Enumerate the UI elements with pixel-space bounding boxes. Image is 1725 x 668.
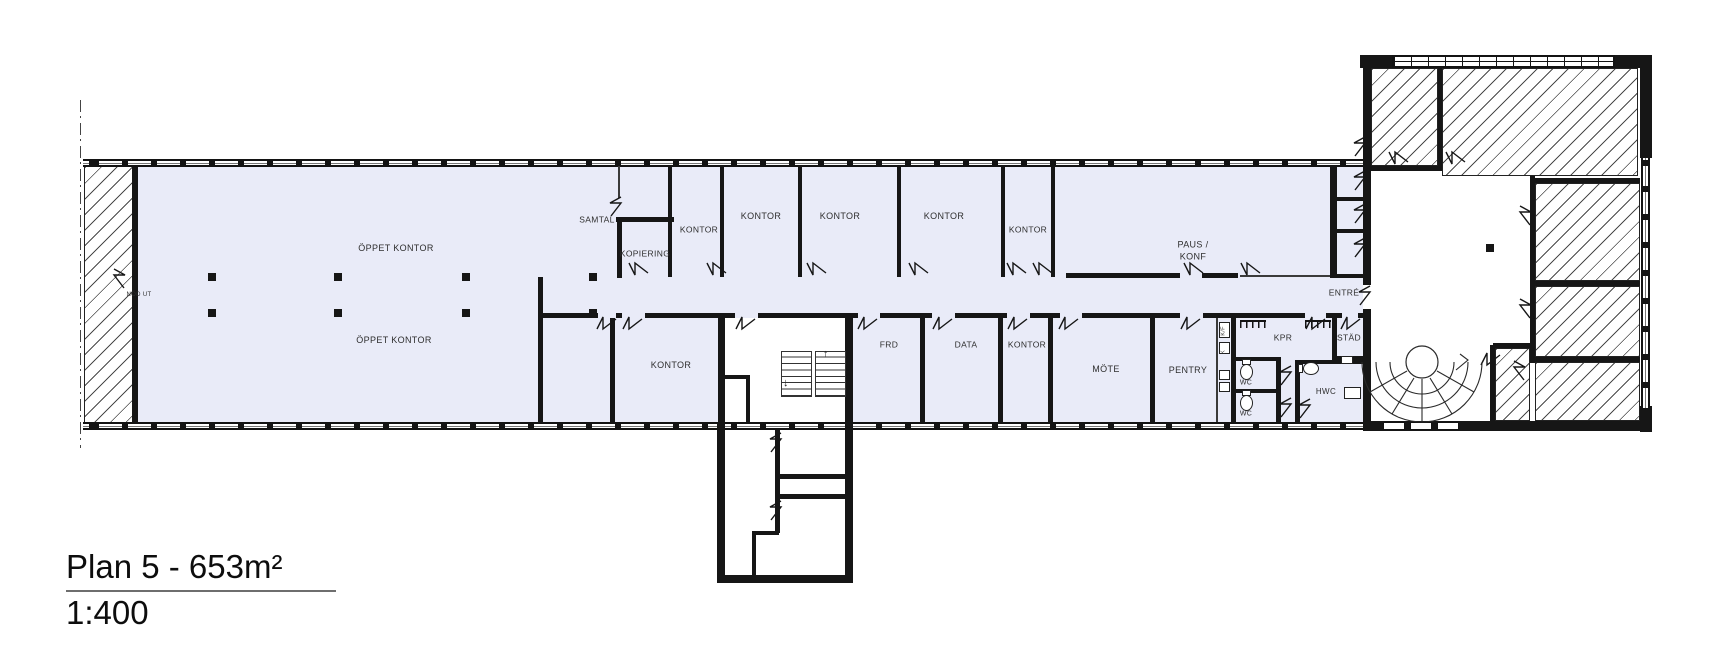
room-label-ppet-kontor: ÖPPET KONTOR [356,335,431,347]
room-label-wc: WC [1240,378,1252,387]
door-swing-icon [1278,397,1293,418]
wall [1001,166,1005,277]
wall [758,313,858,318]
door-swing-icon [1180,316,1201,331]
room-label-kopiering: KOPIERING [620,248,670,259]
window-wall-block-north [1392,55,1615,68]
wall [780,474,845,479]
fixture [1219,382,1230,392]
stair-down-arrow: ↓ [783,378,793,390]
property-line [80,100,81,448]
wall [1231,318,1236,422]
door-swing-icon [857,316,878,331]
door-swing-icon [735,316,756,331]
door-swing-icon [1006,261,1027,276]
door-swing-icon [1305,316,1326,331]
room-label-k: K [1220,350,1227,354]
hatched-area [1535,362,1640,421]
door-swing-icon [706,261,727,276]
door-swing-icon [932,316,953,331]
door-swing-icon [1388,150,1409,165]
room-label-n-d-ut: NÖD UT [126,292,151,300]
fixture [1242,390,1251,396]
coat-rail [1240,320,1266,328]
wall [1048,318,1053,422]
wall [1066,273,1180,278]
wall [920,318,925,422]
wall [1082,313,1180,318]
column [334,309,342,317]
door-swing-icon [806,261,827,276]
room-label-data: DATA [955,339,978,350]
door-swing-icon [1340,316,1361,331]
title-underline [66,590,336,592]
wall [1216,318,1218,422]
door-swing-icon [1183,261,1204,276]
wall [618,166,620,198]
door-swing-icon [622,316,643,331]
room-label-kontor: KONTOR [741,211,781,223]
stair-treads [781,351,812,397]
wall [1337,197,1363,201]
door-swing-icon [112,268,127,289]
plan-title: Plan 5 - 653m² [66,548,282,586]
door-swing-icon [1007,316,1028,331]
wall [1360,55,1392,68]
plan-scale: 1:400 [66,594,149,632]
wall [1640,55,1652,158]
door-swing-icon [768,500,783,521]
room-label-kontor: KONTOR [924,211,964,223]
hatched-area [1535,183,1640,281]
door-swing-icon [1058,316,1079,331]
door-swing-icon [596,316,617,331]
door-swing-icon [1240,261,1261,276]
room-label-hwc: HWC [1316,387,1336,397]
window-wall-block-east [1641,158,1650,408]
wall [780,494,845,499]
wall [845,318,853,422]
room-label-k-f: K/F [1220,326,1227,336]
stair-up-arrow: ↑ [823,349,833,361]
door-swing-icon [1032,261,1053,276]
door-swing-icon [1518,298,1533,319]
room-label-ppet-kontor: ÖPPET KONTOR [358,243,433,255]
fixture [1341,356,1353,364]
column [208,273,216,281]
column [334,273,342,281]
room-label-samtal: SAMTAL [579,214,614,225]
room-label-kontor: KONTOR [680,224,718,235]
wall [717,575,853,583]
door-swing-icon [1352,136,1367,157]
fixture [1219,370,1230,380]
column [1486,244,1494,252]
room-label-kontor: KONTOR [651,360,691,372]
wall [1150,318,1155,422]
wall [718,318,725,422]
wall [845,422,853,583]
door-swing-icon [1352,203,1367,224]
toilet-icon [1303,362,1319,375]
floor-plan-canvas: ↓↑ÖPPET KONTORÖPPET KONTORNÖD UTSAMTALKO… [0,0,1725,668]
door-swing-icon [1445,150,1466,165]
hatched-area [1442,68,1638,176]
wall [1202,273,1238,278]
wall [1337,229,1363,233]
wall [1330,166,1337,278]
wall [538,277,543,423]
room-label-entr: ENTRÉ [1329,287,1360,298]
door-swing-icon [1352,170,1367,191]
wall [746,375,750,422]
room-label-kontor: KONTOR [1008,339,1046,350]
wall [616,217,674,222]
room-label-pentry: PENTRY [1169,365,1207,377]
fixture [1242,359,1251,365]
door-swing-icon [628,261,649,276]
wall [752,531,779,535]
room-label-kpr: KPR [1274,332,1293,343]
column [462,309,470,317]
room-label-wc: WC [1240,409,1252,418]
wall [752,531,756,577]
door-swing-icon [1297,398,1312,419]
door-swing-icon [908,261,929,276]
door-swing-icon [1352,237,1367,258]
wall [1030,313,1060,318]
column [462,273,470,281]
hatched-area [1535,286,1640,357]
room-label-frd: FRD [880,339,899,350]
room-label-paus-konf: PAUS / KONF [1178,239,1209,262]
door-swing-icon [1278,365,1293,386]
wall [1203,313,1305,318]
door-swing-icon [768,432,783,453]
wall [610,318,615,422]
wall [897,166,901,277]
room-label-kontor: KONTOR [1009,224,1047,235]
wall [717,422,725,583]
wall [798,166,802,277]
door-swing-icon [1512,360,1527,381]
door-swing-icon [1518,205,1533,226]
column [589,273,597,281]
wall [998,318,1003,422]
fan-stair-icon [1356,336,1488,426]
column [208,309,216,317]
room-label-m-te: MÖTE [1092,364,1119,376]
room-label-kontor: KONTOR [820,211,860,223]
